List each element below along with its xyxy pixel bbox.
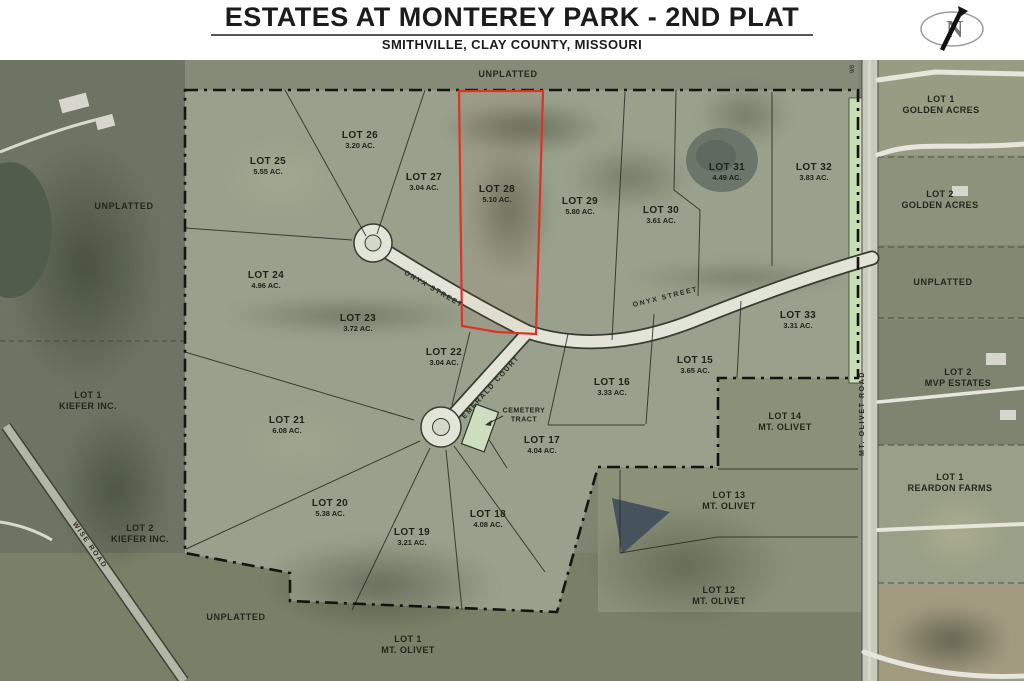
lot-label-21: LOT 216.08 AC. xyxy=(269,415,305,435)
driveway xyxy=(0,120,95,152)
lot-label-31: LOT 314.49 AC. xyxy=(709,162,745,182)
parcel-label-lot2-mvp-estates: LOT 2MVP ESTATES xyxy=(925,367,991,389)
header: ESTATES AT MONTEREY PARK - 2ND PLAT SMIT… xyxy=(0,0,1024,60)
lot-label-25: LOT 255.55 AC. xyxy=(250,156,286,176)
side-road xyxy=(878,524,1024,530)
unplatted-label-right: UNPLATTED xyxy=(913,277,972,287)
lot-label-17: LOT 174.04 AC. xyxy=(524,435,560,455)
plat-linework xyxy=(0,60,1024,681)
plat-map-page: ESTATES AT MONTEREY PARK - 2ND PLAT SMIT… xyxy=(0,0,1024,681)
unplatted-label-bottom: UNPLATTED xyxy=(206,612,265,622)
lot-label-29: LOT 295.80 AC. xyxy=(562,196,598,216)
lot-label-19: LOT 193.21 AC. xyxy=(394,527,430,547)
parcel-label-lot1-golden-acres: LOT 1GOLDEN ACRES xyxy=(903,94,980,116)
road-marker-text: 9/6 xyxy=(850,65,856,73)
page-title: ESTATES AT MONTEREY PARK - 2ND PLAT xyxy=(211,2,814,36)
title-block: ESTATES AT MONTEREY PARK - 2ND PLAT SMIT… xyxy=(0,2,1024,52)
unplatted-label-left: UNPLATTED xyxy=(94,201,153,211)
mt-olivet-road-label: MT. OLIVET ROAD xyxy=(859,371,866,456)
driveway xyxy=(878,388,1024,402)
cemetery-tract-label: CEMETERYTRACT xyxy=(503,407,546,425)
lot-label-33: LOT 333.31 AC. xyxy=(780,310,816,330)
lot-label-22: LOT 223.04 AC. xyxy=(426,347,462,367)
lot-label-27: LOT 273.04 AC. xyxy=(406,172,442,192)
pond xyxy=(612,498,670,554)
side-road xyxy=(878,144,1024,155)
lot-label-26: LOT 263.20 AC. xyxy=(342,130,378,150)
parcel-label-lot12-mt-olivet: LOT 12MT. OLIVET xyxy=(692,585,746,607)
lot-label-16: LOT 163.33 AC. xyxy=(594,377,630,397)
parcel-label-lot1-mt-olivet: LOT 1MT. OLIVET xyxy=(381,634,435,656)
page-subtitle: SMITHVILLE, CLAY COUNTY, MISSOURI xyxy=(0,37,1024,52)
side-road xyxy=(878,72,1024,80)
parcel-label-lot2-golden-acres: LOT 2GOLDEN ACRES xyxy=(902,189,979,211)
north-arrow-icon: N xyxy=(916,6,988,54)
lot-label-15: LOT 153.65 AC. xyxy=(677,355,713,375)
unplatted-label-top: UNPLATTED xyxy=(478,69,537,79)
lot-label-20: LOT 205.38 AC. xyxy=(312,498,348,518)
parcel-label-lot2-kiefer-inc: LOT 2KIEFER INC. xyxy=(111,523,169,545)
parcel-label-lot1-reardon-farms: LOT 1REARDON FARMS xyxy=(908,472,993,494)
lot-label-32: LOT 323.83 AC. xyxy=(796,162,832,182)
aerial-plat-map: LOT 255.55 AC. LOT 263.20 AC. LOT 273.04… xyxy=(0,60,1024,681)
driveway xyxy=(0,522,52,540)
lot-label-30: LOT 303.61 AC. xyxy=(643,205,679,225)
parcel-label-lot13-mt-olivet: LOT 13MT. OLIVET xyxy=(702,490,756,512)
highlighted-lot-28-outline xyxy=(459,91,543,334)
parcel-label-lot14-mt-olivet: LOT 14MT. OLIVET xyxy=(758,411,812,433)
lot-label-24: LOT 244.96 AC. xyxy=(248,270,284,290)
lot-label-28-highlighted: LOT 285.10 AC. xyxy=(479,184,515,204)
side-road xyxy=(864,652,1024,677)
pond xyxy=(0,162,52,298)
lot-label-18: LOT 184.08 AC. xyxy=(470,509,506,529)
lot-label-23: LOT 233.72 AC. xyxy=(340,313,376,333)
parcel-label-lot1-kiefer-inc: LOT 1KIEFER INC. xyxy=(59,390,117,412)
road-green-strip xyxy=(849,98,862,383)
